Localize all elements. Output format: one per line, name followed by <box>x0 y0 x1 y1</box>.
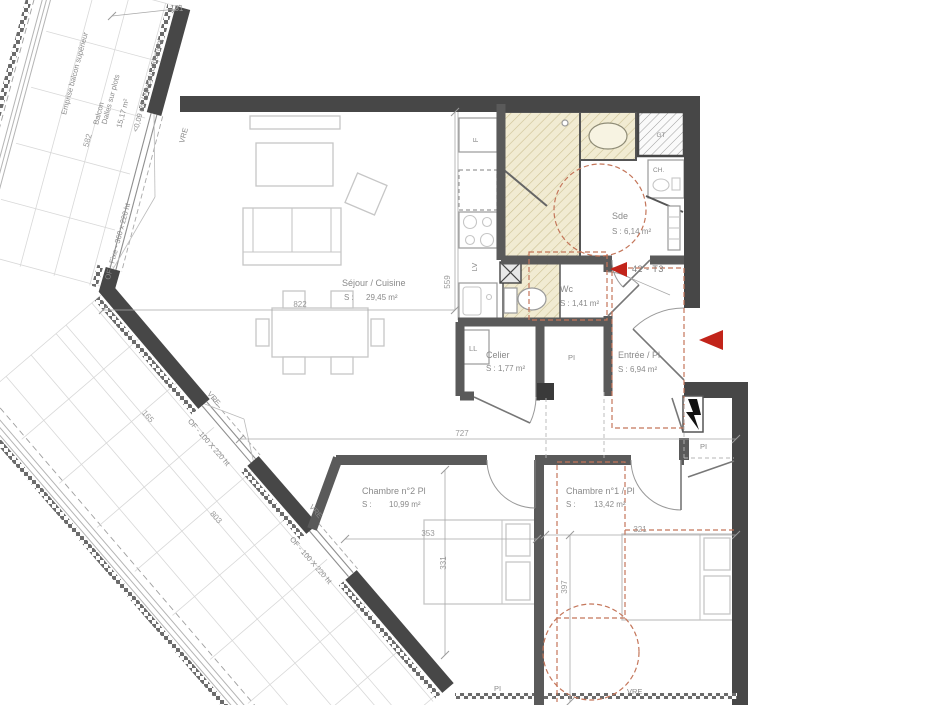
pillow <box>704 576 730 614</box>
toilet-icon <box>518 288 546 310</box>
wall-pier <box>537 383 554 400</box>
dim-822: 822 <box>293 300 307 309</box>
dim-131: 131 <box>170 4 184 13</box>
water-heater-box <box>648 160 684 198</box>
closet-label-1: PI <box>568 353 575 362</box>
washbasin-icon <box>589 123 627 149</box>
window-of1-label: OF - 100 X 220 ht <box>186 417 233 469</box>
shower-icon <box>503 112 580 258</box>
room-area-wc: S : 1,41 m² <box>560 299 599 308</box>
closet-label-2: PI <box>700 442 707 451</box>
room-area-chambre2: 10,99 m² <box>389 500 421 509</box>
balcony-emprise-label: Emprise balcon supérieur <box>59 31 90 116</box>
wc-door <box>608 285 639 316</box>
bedroom-furniture <box>424 330 736 620</box>
dim-397: 397 <box>560 580 569 594</box>
room-area-celier: S : 1,77 m² <box>486 364 525 373</box>
room-area-entree: S : 6,94 m² <box>618 365 657 374</box>
chair <box>371 319 384 346</box>
water-heater-label: CH. <box>653 167 664 174</box>
panel-door <box>672 398 683 432</box>
unit-marker: 42 - T3 <box>610 262 723 350</box>
room-label-entree: Entrée / Pl <box>618 350 660 360</box>
room-label-wc: Wc <box>560 284 573 294</box>
bathroom-fixtures <box>646 160 684 250</box>
dim-727: 727 <box>455 429 469 438</box>
room-label-sde: Sde <box>612 211 628 221</box>
shutter-label-mid1: VRE <box>205 390 222 408</box>
pillow <box>506 562 530 600</box>
coffee-table <box>256 143 333 186</box>
shutter-label-top: VRE <box>177 127 190 144</box>
entry-arrow-icon <box>699 330 723 350</box>
room-label-sejour: Séjour / Cuisine <box>342 278 406 288</box>
floor-plan-page: 42 - T3 Séjour / Cuisine S : 29,45 m² Sd… <box>0 0 940 705</box>
room-s-chambre1: S : <box>566 500 576 509</box>
room-label-chambre1: Chambre n°1 / Pl <box>566 486 635 496</box>
side-table <box>345 173 387 215</box>
duct-label: GT <box>656 132 665 139</box>
pillow <box>506 524 530 556</box>
wet-areas <box>500 112 684 322</box>
tv-stand <box>250 116 340 129</box>
terrace-lower-grid <box>0 295 440 705</box>
closet-door <box>688 461 734 477</box>
electrical-panel <box>683 396 703 432</box>
shutter-label-bottom: VRE <box>627 687 642 696</box>
pillow <box>704 538 730 570</box>
celier-door <box>474 397 530 423</box>
room-s-sejour: S : <box>344 293 354 302</box>
chair <box>256 319 269 346</box>
dishwasher-label: LV <box>470 263 479 272</box>
toilet-tank-icon <box>504 288 517 313</box>
dim-559: 559 <box>443 275 452 289</box>
dim-803: 803 <box>208 509 224 525</box>
dim-321: 321 <box>633 525 647 534</box>
fridge-icon <box>459 118 497 152</box>
floor-plan: 42 - T3 Séjour / Cuisine S : 29,45 m² Sd… <box>0 0 940 705</box>
unit-label: 42 - T3 <box>632 264 664 274</box>
counter-dashed <box>459 170 497 210</box>
room-label-chambre2: Chambre n°2 Pl <box>362 486 426 496</box>
dining-table <box>272 308 368 357</box>
dim-331: 331 <box>439 556 448 570</box>
shower-head-icon <box>562 120 568 126</box>
chair <box>283 357 305 374</box>
washing-machine-label: LL <box>469 344 477 353</box>
fridge-label: F <box>471 137 480 142</box>
living-room-furniture <box>243 116 387 374</box>
sink-icon <box>459 283 497 319</box>
room-area-chambre1: 13,42 m² <box>594 500 626 509</box>
room-label-celier: Celier <box>486 350 510 360</box>
dim-165: 165 <box>140 408 156 424</box>
window-fixed-label: OF : Fixe - 360 x 220 ht <box>103 201 132 280</box>
dim-353: 353 <box>421 529 435 538</box>
closet-label-3: PI <box>494 684 501 693</box>
chair <box>331 357 353 374</box>
room-s-chambre2: S : <box>362 500 372 509</box>
room-area-sejour: 29,45 m² <box>366 293 398 302</box>
room-area-sde: S : 6,14 m² <box>612 227 651 236</box>
